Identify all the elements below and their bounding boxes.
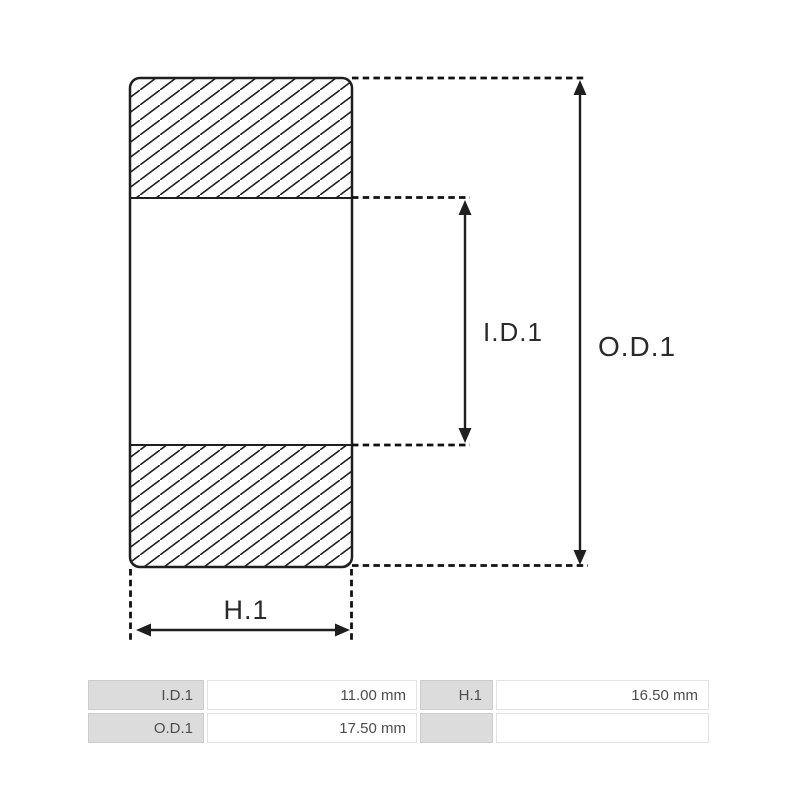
arrowhead-up-icon (574, 80, 587, 95)
table-value-od1: 17.50 mm (207, 713, 417, 743)
arrowhead-right-icon (335, 624, 350, 637)
od-dimension-arrow (574, 80, 587, 565)
id-dimension-arrow (459, 200, 472, 443)
od-dimension-label: O.D.1 (598, 331, 676, 362)
table-value-h1: 16.50 mm (496, 680, 709, 710)
table-value-id1: 11.00 mm (207, 680, 417, 710)
table-label-empty (420, 713, 493, 743)
arrowhead-left-icon (136, 624, 151, 637)
page: I.D.1 O.D.1 H.1 I.D.1 11.00 mm H.1 16.50… (0, 0, 800, 800)
bearing-cross-section-diagram: I.D.1 O.D.1 H.1 (0, 0, 800, 660)
dimensions-table: I.D.1 11.00 mm H.1 16.50 mm O.D.1 17.50 … (88, 680, 710, 743)
table-label-id1: I.D.1 (88, 680, 204, 710)
table-value-empty (496, 713, 709, 743)
arrowhead-up-icon (459, 200, 472, 215)
table-label-h1: H.1 (420, 680, 493, 710)
arrowhead-down-icon (459, 428, 472, 443)
hatch-bottom-section (130, 445, 352, 567)
h-dimension-arrow (136, 624, 350, 637)
hatch-top-section (130, 78, 352, 198)
h-dimension-label: H.1 (223, 595, 268, 625)
id-dimension-label: I.D.1 (483, 317, 543, 347)
table-label-od1: O.D.1 (88, 713, 204, 743)
arrowhead-down-icon (574, 550, 587, 565)
